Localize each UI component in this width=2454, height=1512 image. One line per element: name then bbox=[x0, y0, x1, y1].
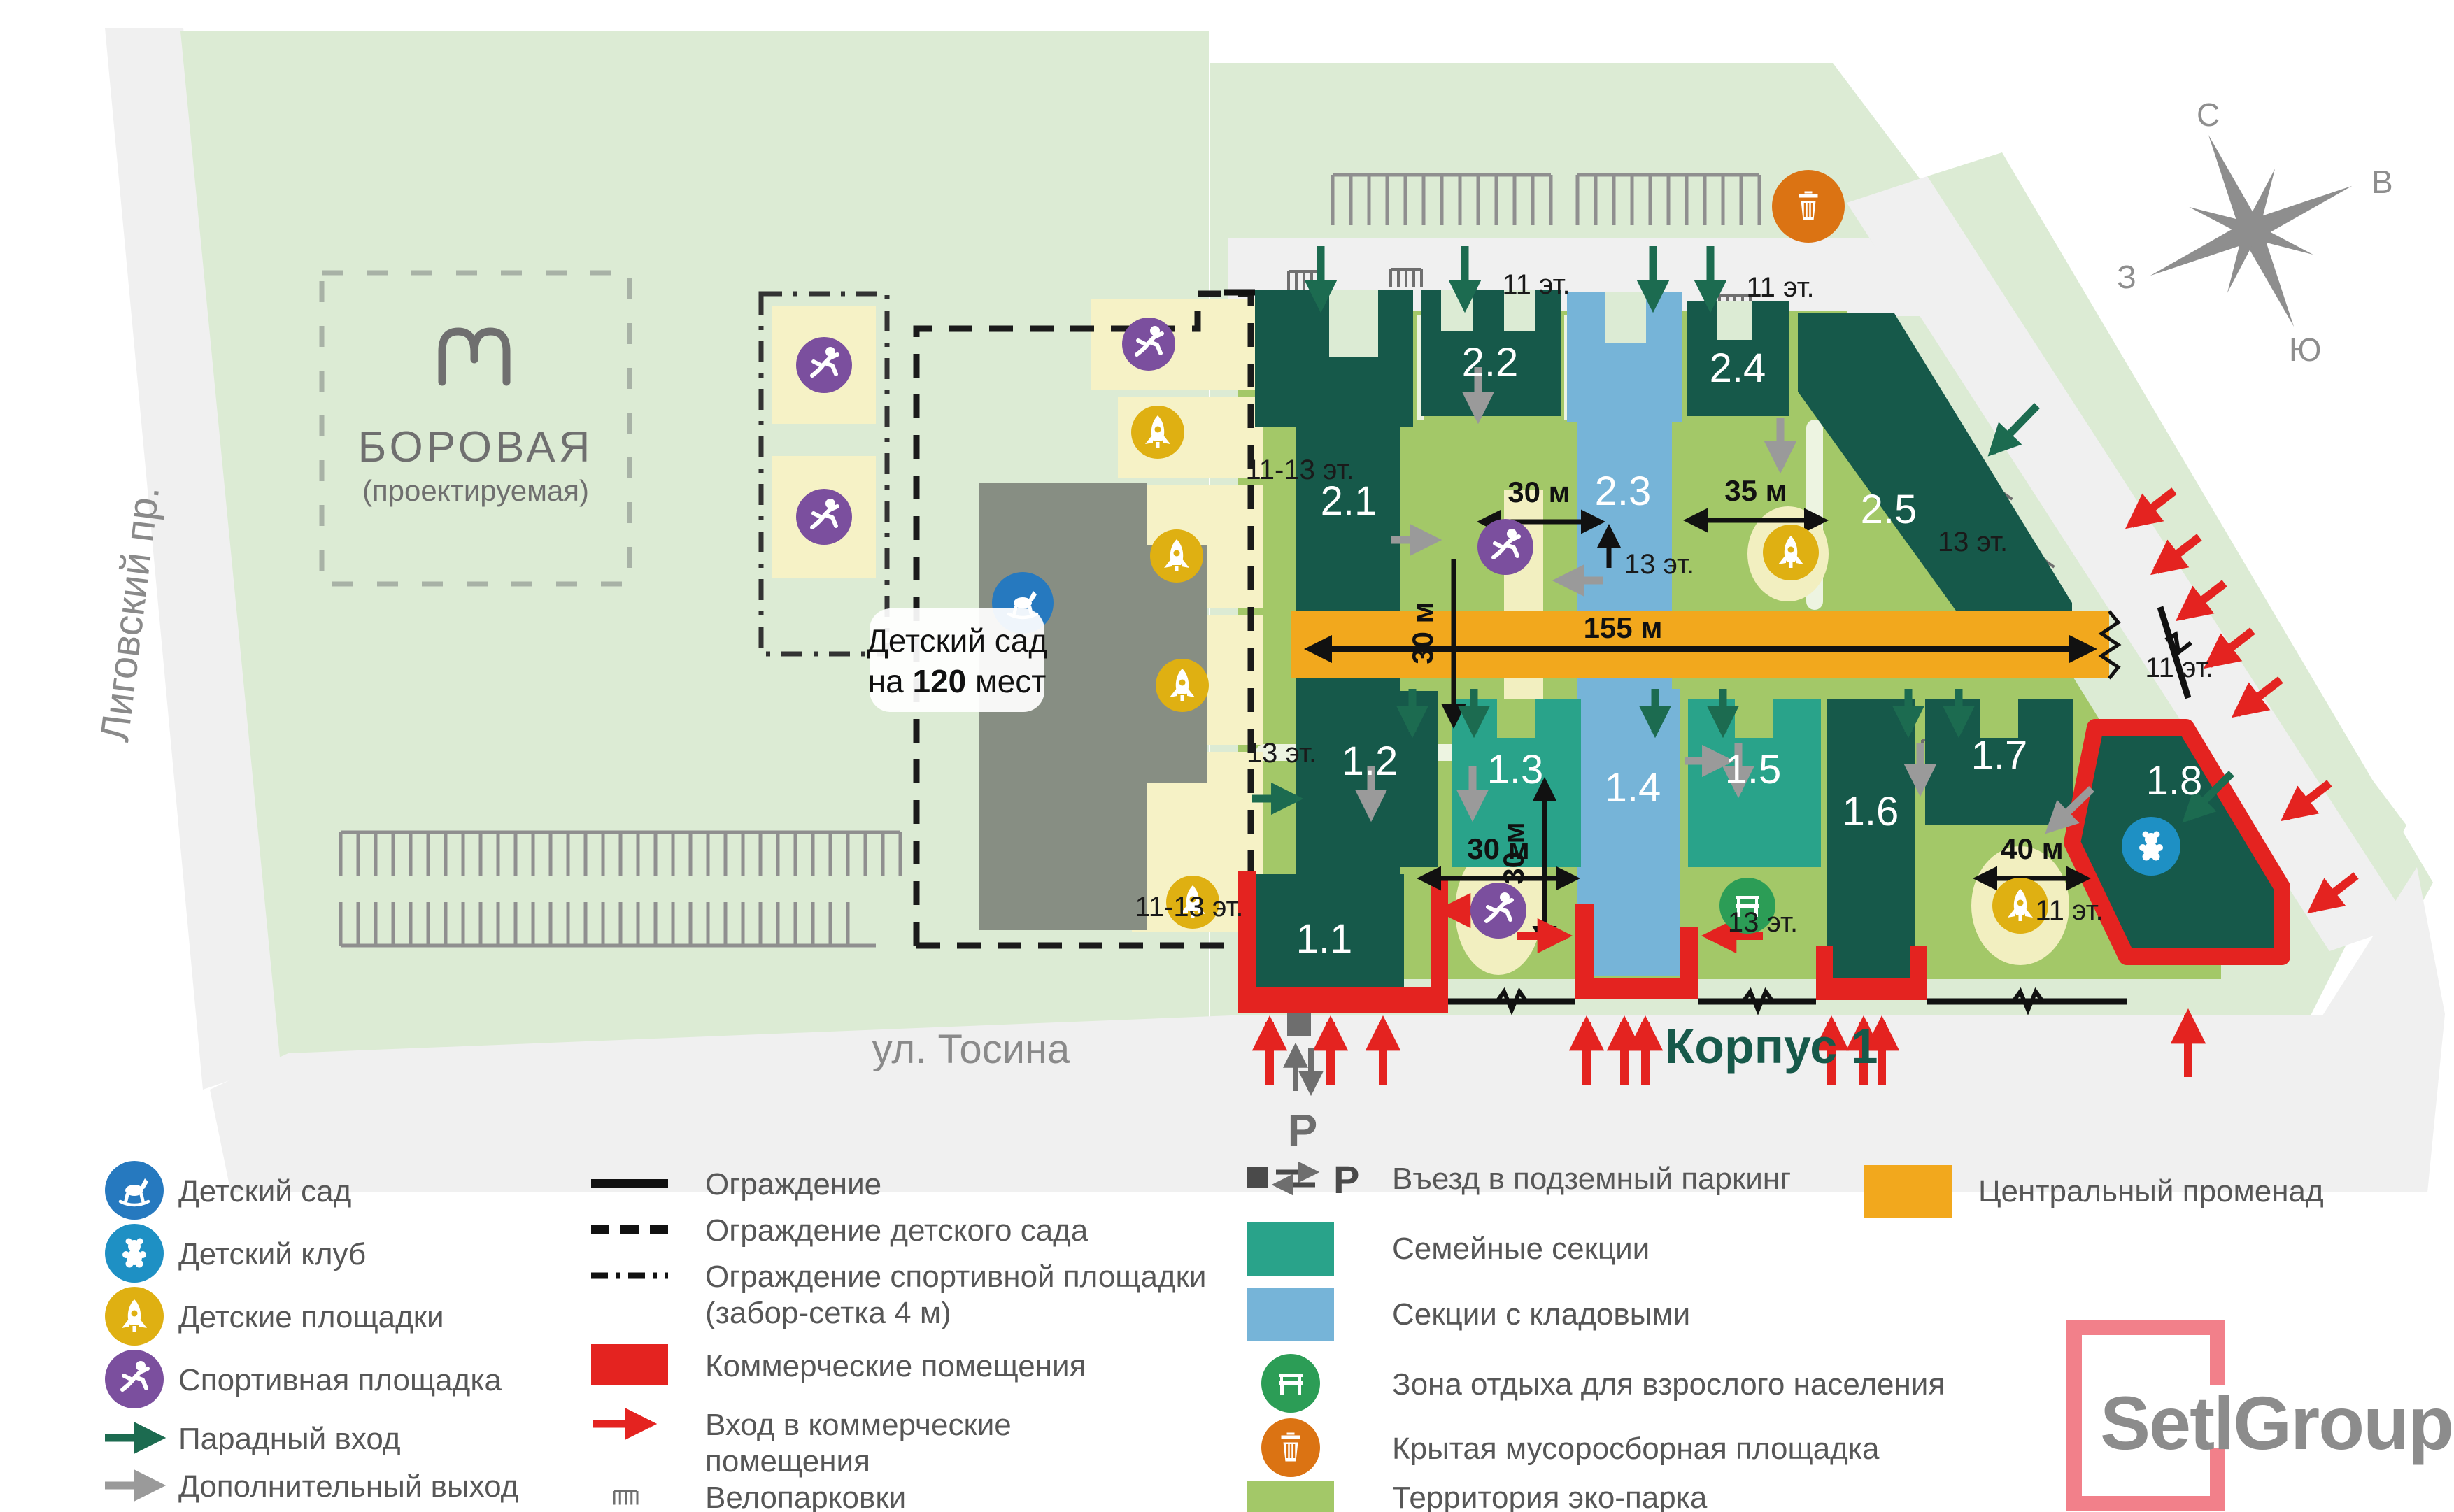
compass-s: Ю bbox=[2289, 331, 2321, 368]
metro-sub: (проектируемая) bbox=[362, 474, 589, 507]
label-1-5: 1.5 bbox=[1725, 747, 1782, 792]
floor-label: 11-13 эт. bbox=[1246, 455, 1354, 485]
measure-35: 35 м bbox=[1724, 474, 1787, 507]
label-2-2: 2.2 bbox=[1462, 340, 1519, 385]
legend-item-label: Территория эко-парка bbox=[1392, 1481, 1708, 1512]
floor-label: 11 эт. bbox=[2145, 652, 2213, 683]
floor-label: 13 эт. bbox=[1247, 738, 1317, 769]
measure-40: 40 м bbox=[2001, 832, 2063, 865]
legend-item-label: Коммерческие помещения bbox=[705, 1349, 1086, 1383]
legend-item-label2: помещения bbox=[705, 1444, 870, 1478]
playground-icon bbox=[1156, 659, 1209, 712]
measure-30v: 30 м bbox=[1406, 601, 1439, 664]
label-1-8: 1.8 bbox=[2146, 758, 2203, 804]
legend-item-label: Ограждение bbox=[705, 1167, 881, 1201]
label-2-4: 2.4 bbox=[1710, 345, 1766, 391]
legend-item-label: Ограждение детского сада bbox=[705, 1213, 1088, 1248]
svg-text:Р: Р bbox=[1333, 1157, 1359, 1201]
legend-sport-icon bbox=[105, 1350, 164, 1408]
playground-icon bbox=[1131, 406, 1184, 459]
sport-icon bbox=[1470, 883, 1526, 939]
legend-kids-club-icon bbox=[105, 1224, 164, 1283]
legend-adult-rest-icon bbox=[1261, 1354, 1320, 1413]
legend-item-label: Секции с кладовыми bbox=[1392, 1297, 1690, 1332]
label-1-4: 1.4 bbox=[1605, 765, 1661, 811]
site-plan-page: БОРОВАЯ (проектируемая) Детский сад на 1… bbox=[0, 0, 2454, 1512]
legend-item-label: Велопарковки bbox=[705, 1481, 906, 1512]
playground-icon bbox=[1150, 529, 1203, 583]
legend-playground-icon bbox=[105, 1287, 164, 1346]
building-1-4 bbox=[1587, 689, 1680, 976]
label-1-1: 1.1 bbox=[1296, 916, 1353, 962]
street-label-tosina: ул. Тосина bbox=[872, 1027, 1070, 1072]
building-1-6 bbox=[1827, 699, 1915, 979]
metro-name: БОРОВАЯ bbox=[358, 423, 594, 471]
playground-icon bbox=[1763, 525, 1819, 580]
legend-commercial-icon bbox=[591, 1344, 668, 1385]
legend-item-label: Крытая мусоросборная площадка bbox=[1392, 1432, 1880, 1466]
legend-item-label: Семейные секции bbox=[1392, 1232, 1650, 1266]
logo-text: SetlGroup bbox=[2100, 1381, 2453, 1465]
legend-item-label: Центральный променад bbox=[1978, 1174, 2324, 1208]
floor-label: 11 эт. bbox=[1746, 272, 1814, 303]
legend-item-label: Детские площадки bbox=[178, 1300, 444, 1334]
korpus-title: Корпус 1 bbox=[1664, 1019, 1878, 1074]
kindergarten-label-line1: Детский сад bbox=[867, 622, 1048, 659]
compass-n: С bbox=[2197, 97, 2220, 133]
legend-promenade-icon bbox=[1864, 1165, 1952, 1218]
site-plan-map: БОРОВАЯ (проектируемая) Детский сад на 1… bbox=[0, 0, 2454, 1512]
floor-label: 11 эт. bbox=[2035, 895, 2103, 926]
sport-icon bbox=[796, 489, 852, 545]
label-1-6: 1.6 bbox=[1843, 789, 1899, 834]
legend-item-label: Въезд в подземный паркинг bbox=[1392, 1162, 1791, 1196]
legend-item-label: Зона отдыха для взрослого населения bbox=[1392, 1367, 1945, 1402]
compass-e: В bbox=[2371, 164, 2393, 200]
floor-label: 13 эт. bbox=[1728, 907, 1798, 938]
compass-w: З bbox=[2117, 259, 2136, 295]
legend-family-sections-icon bbox=[1247, 1222, 1334, 1276]
sport-icon bbox=[796, 337, 852, 393]
legend-item-label: Детский клуб bbox=[178, 1237, 366, 1271]
measure-155: 155 м bbox=[1584, 611, 1663, 644]
label-1-3: 1.3 bbox=[1487, 747, 1544, 792]
legend-eco-park-icon bbox=[1247, 1481, 1334, 1512]
sport-icon bbox=[1477, 519, 1533, 575]
legend-item-label: Спортивная площадка bbox=[178, 1363, 502, 1397]
legend-item-label: Парадный вход bbox=[178, 1422, 401, 1456]
floor-label: 13 эт. bbox=[1938, 527, 2008, 557]
legend-storage-sections-icon bbox=[1247, 1288, 1334, 1341]
legend-item-label: Вход в коммерческие bbox=[705, 1408, 1012, 1442]
label-1-2: 1.2 bbox=[1342, 739, 1398, 784]
label-1-7: 1.7 bbox=[1971, 733, 2028, 778]
measure-30: 30 м bbox=[1508, 476, 1570, 508]
kids-club-icon bbox=[2122, 817, 2180, 876]
floor-label: 11 эт. bbox=[1502, 269, 1570, 300]
legend-item-label: Ограждение спортивной площадки bbox=[705, 1260, 1206, 1294]
floor-label: 13 эт. bbox=[1624, 549, 1694, 580]
label-2-3: 2.3 bbox=[1595, 469, 1652, 514]
label-2-5: 2.5 bbox=[1861, 487, 1917, 532]
kindergarten-label-line2: на 120 мест bbox=[868, 663, 1047, 699]
legend-item-label: Детский сад bbox=[178, 1174, 351, 1208]
legend-item-label2: (забор-сетка 4 м) bbox=[705, 1296, 951, 1330]
legend-kindergarten-icon bbox=[105, 1161, 164, 1220]
legend-item-label: Дополнительный выход bbox=[178, 1469, 518, 1504]
sport-icon bbox=[1122, 318, 1175, 371]
parking-letter: Р bbox=[1288, 1105, 1318, 1155]
legend-trash-area-icon bbox=[1261, 1418, 1320, 1477]
measure-30b: 30 м bbox=[1467, 832, 1529, 865]
trash-area-icon bbox=[1772, 170, 1845, 243]
floor-label: 11-13 эт. bbox=[1135, 892, 1244, 922]
